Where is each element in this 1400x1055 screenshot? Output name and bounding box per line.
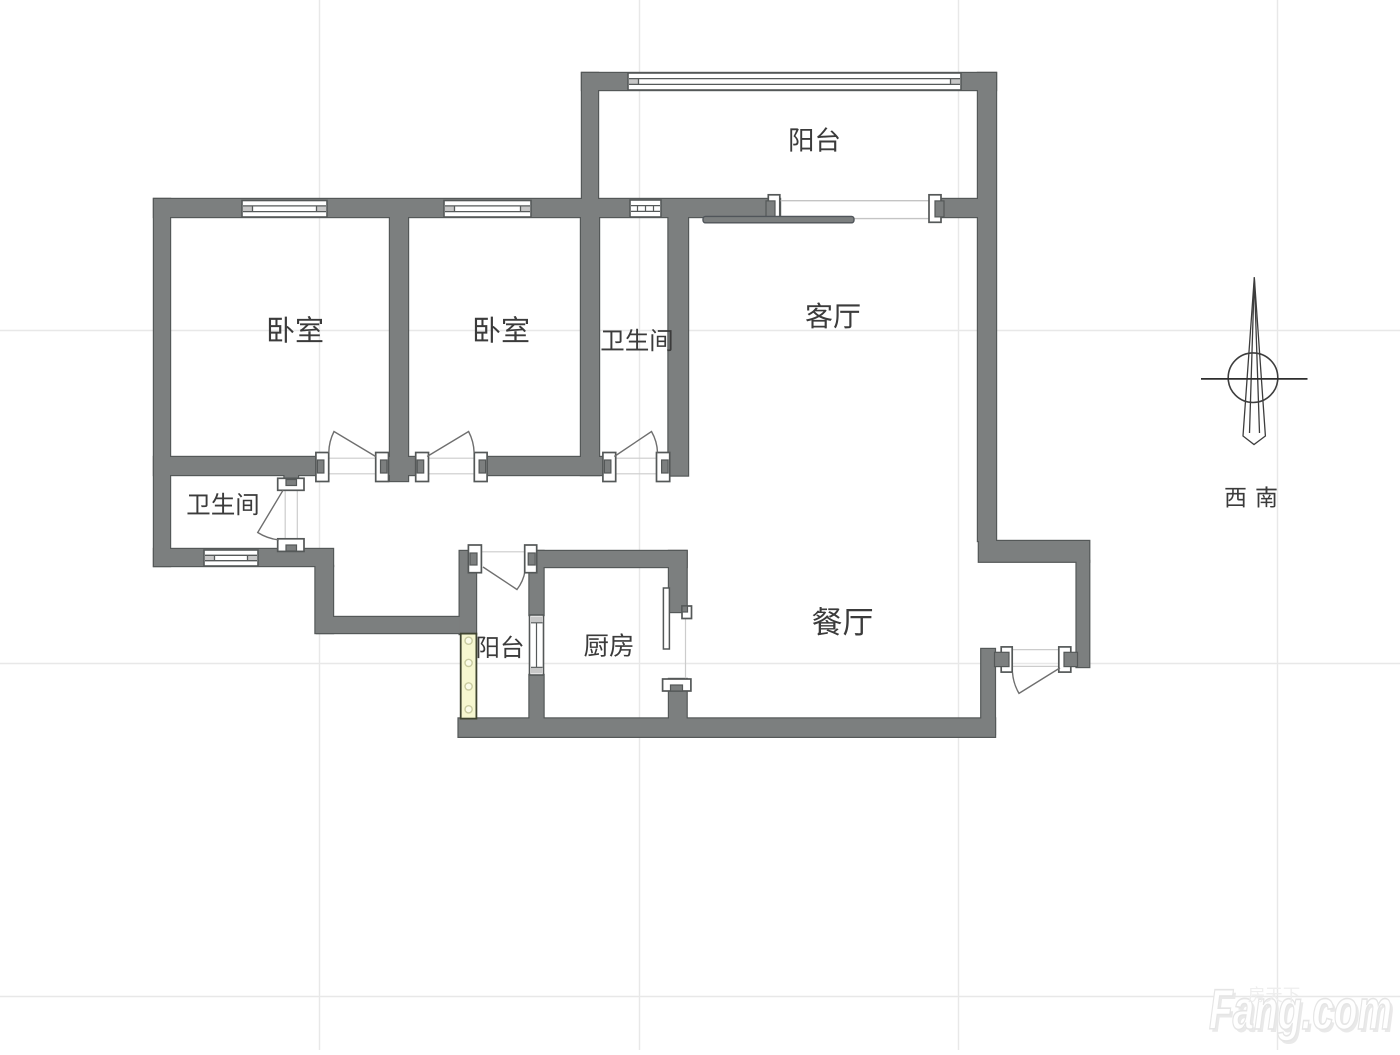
svg-text:Fang.com: Fang.com	[1209, 978, 1392, 1042]
